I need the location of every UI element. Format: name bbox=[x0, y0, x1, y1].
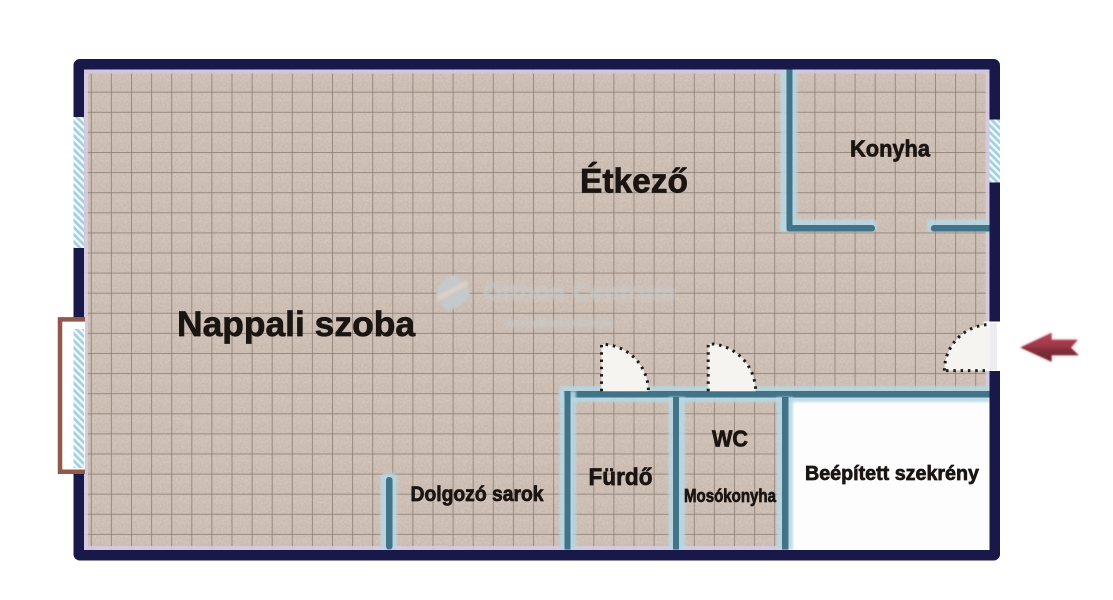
svg-text:Nappali szoba: Nappali szoba bbox=[177, 305, 416, 344]
svg-text:Otthon Centrum: Otthon Centrum bbox=[483, 279, 675, 306]
svg-text:Étkező: Étkező bbox=[580, 162, 688, 200]
svg-text:Beépített szekrény: Beépített szekrény bbox=[805, 463, 980, 485]
svg-text:WC: WC bbox=[712, 426, 748, 452]
svg-text:Konyha: Konyha bbox=[850, 136, 930, 162]
svg-text:Fürdő: Fürdő bbox=[589, 464, 653, 491]
svg-text:Dolgozó sarok: Dolgozó sarok bbox=[411, 483, 544, 506]
svg-text:www.otthoncentrum.hu: www.otthoncentrum.hu bbox=[505, 316, 614, 330]
svg-text:Mosókonyha: Mosókonyha bbox=[684, 486, 777, 506]
